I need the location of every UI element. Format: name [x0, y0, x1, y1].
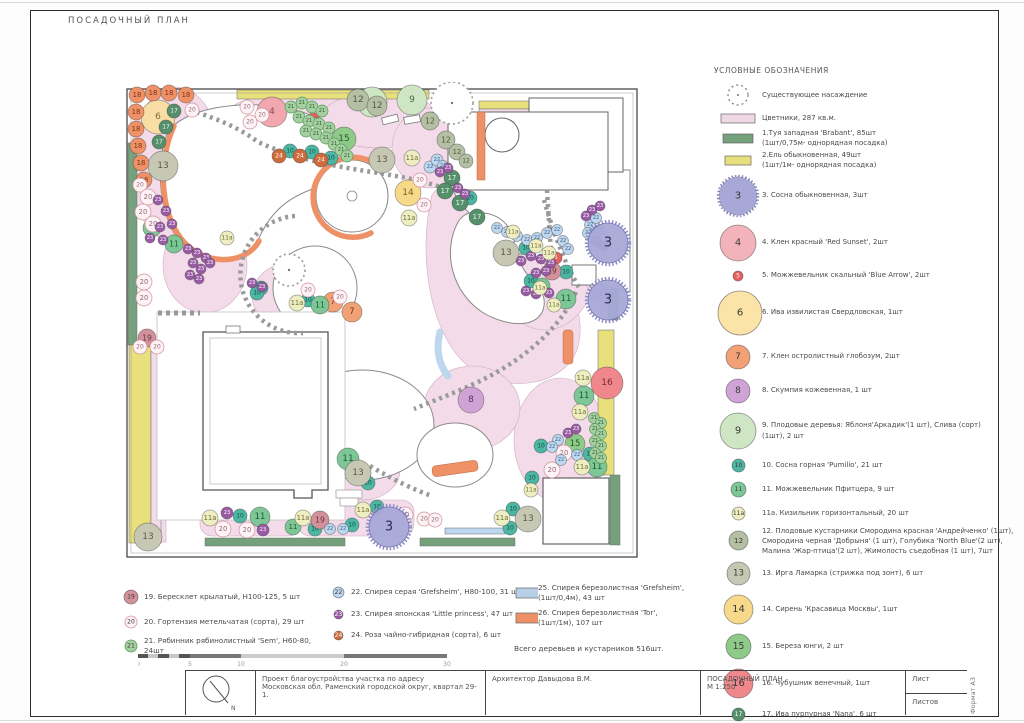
plant-marker-label: 10: [562, 269, 570, 276]
plant-marker-label: 10: [528, 475, 536, 482]
legend-item: 1313. Ирга Ламарка (стрижка под зонт), 6…: [714, 558, 1014, 589]
plant-marker-label: 11: [315, 301, 325, 310]
plant-marker-label: 23: [259, 284, 265, 290]
shed: [543, 478, 609, 544]
legend-item: 66. Ива извилистая Свердловская, 1шт: [714, 287, 1014, 339]
plant-marker-label: 23: [260, 527, 266, 533]
legend-item-icon: 22: [325, 583, 351, 602]
plant-marker-label: 13: [157, 161, 168, 171]
legend-item: 2424. Роза чайно-гибридная (сорта), 6 шт: [325, 627, 525, 644]
plant-marker-label: 22: [340, 526, 346, 532]
plant-marker-label: 20: [188, 107, 196, 114]
legend-item: 1414. Сирень 'Красавица Москвы', 1шт: [714, 591, 1014, 628]
legend-title: УСЛОВНЫЕ ОБОЗНАЧЕНИЯ: [714, 66, 1014, 75]
totals-line: Всего деревьев и кустарников 516шт.: [514, 644, 664, 653]
svg-text:5: 5: [736, 272, 740, 279]
plant-circle-icon: 23: [330, 606, 347, 623]
scalebar-label: 0: [138, 661, 140, 668]
plant-marker-label: 18: [132, 108, 141, 116]
plant-circle-icon: 11а: [728, 503, 749, 524]
plant-marker-label: 21: [323, 135, 329, 141]
legend-item-text: 20. Гортензия метельчатая (сорта), 29 шт: [144, 617, 304, 627]
titleblock-sheet-cell: Лист: [905, 670, 967, 693]
legend-item-text: 23. Спирея японская 'Little princess', 4…: [351, 609, 513, 619]
plant-marker-label: 23: [528, 253, 534, 259]
plant-circle-icon: 5: [729, 267, 747, 285]
plant-marker-label: 18: [134, 142, 143, 150]
legend-item: 26. Спирея березолистная 'Tor',(1шт/1м),…: [512, 608, 707, 629]
plant-marker-label: 23: [160, 237, 166, 243]
legend-item-text: 7. Клен остролистный глобозум, 2шт: [762, 351, 900, 361]
page-title: ПОСАДОЧНЫЙ ПЛАН: [68, 16, 190, 26]
legend-item-icon: [714, 81, 762, 109]
plant-marker-label: 23: [187, 272, 193, 278]
plant-marker-label: 12: [352, 95, 363, 105]
scalebar-label: 20: [340, 661, 348, 668]
legend-item: 25. Спирея березолистная 'Grefsheim',(1ш…: [512, 583, 707, 604]
plant-marker-label: 21: [344, 153, 350, 159]
legend-item: Существующее насаждение: [714, 81, 1014, 109]
pine-marker-label: 3: [385, 520, 393, 535]
plant-circle-icon: 3: [715, 173, 761, 219]
plant-marker-label: 23: [565, 430, 571, 436]
plant-marker-label: 11а: [530, 243, 542, 250]
plant-marker-label: 10: [509, 506, 517, 513]
plant-marker-label: 13: [500, 248, 511, 258]
plant-marker-label: 17: [162, 124, 170, 131]
plant-marker-label: 11а: [291, 299, 304, 307]
svg-text:9: 9: [735, 425, 741, 436]
plant-marker-label: 20: [243, 104, 251, 111]
plant-marker-label: 13: [142, 532, 153, 542]
legend-item-icon: 10: [714, 455, 762, 476]
strip-icon: [721, 153, 755, 168]
plant-marker-label: 11а: [357, 506, 370, 514]
plant-marker-label: 23: [548, 260, 554, 266]
plant-circle-icon: 10: [728, 455, 749, 476]
legend-item-text: 6. Ива извилистая Свердловская, 1шт: [762, 307, 903, 317]
plant-marker-label: 20: [136, 344, 144, 351]
svg-text:14: 14: [732, 604, 745, 615]
legend-item: 77. Клен остролистный глобозум, 2шт: [714, 341, 1014, 373]
strip-icon: [717, 111, 759, 126]
strip-icon: [719, 131, 757, 146]
plant-marker-label: 23: [249, 280, 255, 286]
page: { "sheet": { "title": "ПОСАДОЧНЫЙ ПЛАН" …: [0, 0, 1024, 723]
plant-marker-label: 22: [593, 215, 599, 221]
plant-marker-label: 13: [352, 468, 363, 478]
plant-marker-label: 23: [455, 185, 461, 191]
plant-marker-label: 23: [185, 246, 191, 252]
architect-name: Архитектор Давыдова В.М.: [486, 671, 700, 687]
plant-marker-label: 21: [598, 455, 604, 461]
legend-item-icon: [714, 111, 762, 126]
plant-marker-label: 22: [544, 230, 550, 236]
plant-marker-label: 4: [269, 107, 275, 117]
plant-marker-label: 12: [372, 101, 383, 111]
legend-item: 1919. Бересклет крылатый, H100-125, 5 шт: [118, 586, 330, 608]
plant-marker-label: 22: [574, 452, 580, 458]
plant-marker-label: 21: [598, 443, 604, 449]
svg-text:8: 8: [735, 386, 741, 396]
plant-marker-label: 12: [425, 117, 435, 126]
plant-marker-label: 11а: [221, 235, 233, 242]
plant-marker-label: 23: [207, 260, 213, 266]
terrace-tree: [485, 118, 519, 152]
plant-marker-label: 20: [243, 526, 252, 534]
titleblock-north-cell: N: [185, 670, 255, 715]
plant-marker-label: 23: [163, 208, 169, 214]
plant-circle-icon: 22: [329, 583, 348, 602]
plant-marker-label: 23: [583, 213, 589, 219]
plant-marker-label: 11а: [543, 250, 555, 257]
svg-text:3: 3: [735, 190, 741, 201]
scalebar-label: 5: [188, 661, 192, 668]
legend-item-text: 19. Бересклет крылатый, H100-125, 5 шт: [144, 592, 300, 602]
legend-item-icon: [714, 131, 762, 146]
plant-marker-label: 24: [296, 153, 304, 160]
legend-item-text: 11а. Кизильник горизонтальный, 20 шт: [762, 508, 909, 518]
scalebar-label: 10: [237, 661, 245, 668]
plant-marker-label: 22: [549, 444, 555, 450]
pine-marker-label: 3: [604, 236, 612, 251]
plant-marker-label: 11а: [507, 229, 519, 236]
legend-item-icon: 7: [714, 341, 762, 373]
plant-marker-label: 14: [402, 188, 414, 198]
legend-list: Существующее насаждениеЦветники, 287 кв.…: [714, 81, 1014, 723]
plant-marker-label: 20: [304, 287, 312, 294]
plant-marker-label: 17: [441, 187, 450, 195]
svg-text:21: 21: [127, 643, 135, 650]
svg-text:11а: 11а: [732, 510, 744, 517]
plant-marker-label: 23: [147, 235, 153, 241]
plant-marker-label: 10: [304, 297, 312, 304]
plant-marker-label: 22: [494, 225, 500, 231]
plant-circle-icon: 13: [723, 558, 754, 589]
plant-marker-label: 23: [589, 207, 595, 213]
svg-text:6: 6: [737, 307, 743, 318]
legend-item-icon: 8: [714, 375, 762, 407]
plant-marker-label: 22: [558, 457, 564, 463]
plant-marker-label: 23: [196, 276, 202, 282]
plant-marker-label: 15: [570, 439, 581, 449]
svg-text:12: 12: [733, 536, 742, 545]
plant-marker-label: 22: [524, 237, 530, 243]
plant-marker-label: 20: [416, 177, 424, 184]
plant-circle-icon: 19: [120, 586, 142, 608]
plant-marker-label: 11а: [297, 514, 310, 522]
svg-text:23: 23: [334, 611, 342, 618]
plant-marker-label: 21: [309, 104, 315, 110]
legend-item: 33. Сосна обыкновенная, 3шт: [714, 173, 1014, 219]
plant-marker-label: 6: [155, 112, 161, 122]
plant-marker-label: 10: [506, 525, 514, 532]
plant-circle-icon: 14: [720, 591, 757, 628]
legend-item-icon: 19: [118, 586, 144, 608]
project-address-line1: Проект благоустройства участка по адресу: [262, 675, 424, 683]
titleblock-architect-cell: Архитектор Давыдова В.М.: [485, 670, 700, 715]
plant-marker-label: 20: [420, 516, 428, 523]
legend-panel: УСЛОВНЫЕ ОБОЗНАЧЕНИЯ Существующее насажд…: [714, 66, 1014, 723]
plant-marker-label: 23: [462, 191, 468, 197]
plant-marker-label: 19: [315, 516, 325, 525]
plant-circle-icon: 8: [722, 375, 754, 407]
strip-icon: [512, 585, 538, 601]
plant-marker-label: 11а: [525, 487, 537, 494]
legend-item: 44. Клен красный 'Red Sunset', 2шт: [714, 221, 1014, 265]
plant-marker-label: 11а: [577, 374, 590, 382]
plant-marker-label: 21: [296, 114, 302, 120]
format-label: Формат А3: [969, 674, 977, 714]
plant-marker-label: 12: [453, 148, 462, 156]
legend-item: 1515. Береза юнги, 2 шт: [714, 630, 1014, 663]
plant-marker-label: 23: [597, 203, 603, 209]
plant-marker-label: 21: [326, 125, 332, 131]
plant-marker-label: 10: [308, 149, 316, 156]
legend-item-text: 8. Скумпия кожевенная, 1 шт: [762, 385, 872, 395]
legend-item-icon: 23: [325, 606, 351, 623]
legend-item-icon: 14: [714, 591, 762, 628]
plant-marker-label: 10: [527, 278, 535, 285]
plant-marker-label: 21: [316, 121, 322, 127]
plant-marker-label: 23: [543, 268, 549, 274]
legend-item-text: 24. Роза чайно-гибридная (сорта), 6 шт: [351, 630, 501, 640]
plant-marker-label: 17: [155, 139, 163, 146]
plant-marker-label: 11: [289, 523, 298, 531]
svg-text:7: 7: [735, 352, 741, 362]
plant-marker-label: 11а: [548, 302, 560, 309]
plant-marker-label: 16: [601, 378, 613, 388]
titleblock-sheets-cell: Листов: [905, 693, 967, 715]
svg-text:4: 4: [735, 237, 741, 248]
plant-marker-label: 20: [548, 466, 557, 474]
legend-item-icon: 12: [714, 527, 762, 554]
plant-marker-label: 23: [573, 426, 579, 432]
plant-circle-icon: 12: [725, 527, 752, 554]
plant-marker-label: 22: [554, 227, 560, 233]
plant-marker-label: 22: [427, 164, 433, 170]
plant-marker-label: 22: [555, 437, 561, 443]
plant-marker-label: 22: [565, 246, 571, 252]
legend-item-icon: 11а: [714, 503, 762, 524]
plant-marker-label: 10: [348, 522, 356, 529]
legend-item: 1010. Сосна горная 'Pumilio', 21 шт: [714, 455, 1014, 476]
plant-marker-label: 20: [153, 344, 161, 351]
svg-text:22: 22: [334, 589, 342, 596]
legend-item: 11а11а. Кизильник горизонтальный, 20 шт: [714, 503, 1014, 524]
legend-item-text: 5. Можжевельник скальный 'Blue Arrow', 2…: [762, 270, 930, 280]
plant-marker-label: 11а: [574, 408, 587, 416]
plant-marker-label: 11а: [406, 154, 419, 162]
plant-marker-label: 11: [579, 391, 590, 401]
plant-marker-label: 23: [523, 288, 529, 294]
legend-item-text: 10. Сосна горная 'Pumilio', 21 шт: [762, 460, 883, 470]
plant-marker-label: 21: [319, 108, 325, 114]
legend-item: Цветники, 287 кв.м.: [714, 111, 1014, 126]
legend-item-text: 9. Плодовые деревья: Яблоня'Аркадик'(1 ш…: [762, 420, 981, 440]
plant-marker-label: 17: [170, 108, 178, 115]
legend-item-icon: 13: [714, 558, 762, 589]
existing-tree-icon: [724, 81, 752, 109]
plant-marker-label: 22: [327, 526, 333, 532]
plant-marker-label: 17: [473, 213, 482, 221]
legend-item-icon: 5: [714, 267, 762, 285]
plant-marker-label: 23: [518, 258, 524, 264]
plant-circle-icon: 15: [722, 630, 755, 663]
plant-marker-label: 20: [246, 119, 254, 126]
legend-item-text: 25. Спирея березолистная 'Grefsheim',(1ш…: [538, 583, 684, 604]
plant-marker-label: 23: [533, 270, 539, 276]
plant-marker-label: 8: [468, 395, 474, 405]
plan-drawing: 4556778991010101010101010101010101010101…: [120, 82, 644, 564]
plant-marker-label: 13: [522, 514, 533, 524]
titleblock-drawing-cell: ПОСАДОЧНЫЙ ПЛАН М 1:250: [700, 670, 905, 715]
plant-marker-label: 23: [445, 165, 451, 171]
plant-marker-label: 13: [376, 155, 387, 165]
plant-circle-icon: 6: [714, 287, 762, 339]
plant-marker-label: 12: [441, 136, 451, 145]
legend-item-text: 22. Спирея серая 'Grefsheim', H80-100, 3…: [351, 587, 522, 597]
plant-marker-label: 10: [236, 513, 244, 520]
plant-marker-label: 20: [140, 294, 149, 302]
plant-marker-label: 21: [313, 131, 319, 137]
plant-marker-label: 11: [169, 240, 179, 249]
legend-item-text: 14. Сирень 'Красавица Москвы', 1шт: [762, 604, 898, 614]
plant-marker-label: 23: [437, 169, 443, 175]
plant-marker-label: 10: [286, 148, 294, 155]
plant-marker-label: 9: [409, 95, 415, 105]
legend-item-icon: 6: [714, 287, 762, 339]
plant-marker-label: 18: [149, 89, 158, 97]
plant-circle-icon: 4: [716, 221, 760, 265]
plant-marker-label: 21: [598, 431, 604, 437]
plant-circle-icon: 11: [727, 478, 750, 501]
legend-item-icon: 15: [714, 630, 762, 663]
plant-marker-label: 11: [255, 512, 266, 522]
svg-text:N: N: [231, 705, 236, 712]
legend-item: 55. Можжевельник скальный 'Blue Arrow', …: [714, 267, 1014, 285]
plant-marker-label: 18: [137, 159, 146, 167]
svg-text:24: 24: [334, 632, 342, 639]
plant-marker-label: 20: [140, 278, 149, 286]
legend-item-text: 2.Ель обыкновенная, 49шт(1шт/1м- одноряд…: [762, 150, 876, 170]
legend-item-icon: 24: [325, 627, 351, 644]
plant-marker-label: 17: [448, 174, 457, 182]
plant-circle-icon: 9: [716, 409, 760, 453]
plant-marker-label: 11а: [204, 514, 217, 522]
sheets-label: Листов: [906, 694, 967, 710]
plant-marker-label: 20: [336, 294, 344, 301]
plant-marker-label: 23: [155, 197, 161, 203]
legend-item-text: 26. Спирея березолистная 'Tor',(1шт/1м),…: [538, 608, 658, 629]
svg-text:20: 20: [127, 619, 135, 626]
legend-item-text: 12. Плодовые кустарники Смородина красна…: [762, 526, 1013, 556]
plant-marker-label: 10: [537, 443, 545, 450]
plant-marker-label: 17: [456, 199, 465, 207]
svg-text:11: 11: [734, 486, 742, 493]
plant-marker-label: 11: [561, 294, 572, 304]
drawing-scale: М 1:250: [707, 683, 735, 691]
plant-marker-label: 10: [327, 155, 335, 162]
plant-marker-label: 21: [303, 128, 309, 134]
plant-marker-label: 20: [420, 202, 428, 209]
plant-marker-label: 20: [144, 193, 153, 201]
plant-marker-label: 23: [190, 260, 196, 266]
legend-item-icon: [714, 153, 762, 168]
legend-item-icon: 3: [714, 173, 762, 219]
plant-marker-label: 11а: [576, 463, 589, 471]
plant-marker-label: 23: [546, 290, 552, 296]
legend-item: 88. Скумпия кожевенная, 1 шт: [714, 375, 1014, 407]
plant-circle-icon: 20: [121, 612, 141, 632]
legend-item-icon: [512, 585, 538, 601]
plant-marker-label: 20: [431, 517, 439, 524]
plant-marker-label: 23: [194, 250, 200, 256]
legend-item-icon: 11: [714, 478, 762, 501]
plant-marker-label: 7: [349, 307, 354, 317]
legend-item-text: 11. Можжевельник Пфитцера, 9 шт: [762, 484, 895, 494]
legend-item-icon: 4: [714, 221, 762, 265]
plant-marker-label: 23: [157, 224, 163, 230]
plant-marker-label: 22: [587, 222, 593, 228]
legend-item: 1.Туя западная 'Brabant', 85шт(1шт/0,75м…: [714, 128, 1014, 148]
legend-item-text: 13. Ирга Ламарка (стрижка под зонт), 6 ш…: [762, 568, 923, 578]
plant-marker-label: 18: [133, 91, 142, 99]
legend-item-text: Цветники, 287 кв.м.: [762, 113, 836, 123]
legend-item: 1111. Можжевельник Пфитцера, 9 шт: [714, 478, 1014, 501]
legend-item: 2323. Спирея японская 'Little princess',…: [325, 606, 525, 623]
scale-bar: 05102030: [138, 648, 458, 672]
plant-marker-label: 18: [165, 89, 174, 97]
north-arrow-icon: N: [186, 671, 252, 713]
titleblock-project-cell: Проект благоустройства участка по адресу…: [255, 670, 485, 715]
plant-marker-label: 18: [182, 91, 191, 99]
sheet-label: Лист: [906, 671, 967, 687]
legend-item: 2222. Спирея серая 'Grefsheim', H80-100,…: [325, 583, 525, 602]
legend-item-icon: [512, 610, 538, 626]
plant-marker-label: 22: [560, 238, 566, 244]
plant-marker-label: 18: [132, 125, 141, 133]
svg-text:19: 19: [127, 594, 135, 601]
legend-item-text: 3. Сосна обыкновенная, 3шт: [762, 190, 868, 200]
terrace-inner: [448, 112, 608, 190]
legend-item-text: Существующее насаждение: [762, 90, 867, 100]
legend-item-text: 4. Клен красный 'Red Sunset', 2шт: [762, 237, 888, 247]
plant-marker-label: 11а: [403, 214, 416, 222]
scalebar-label: 30: [443, 661, 451, 668]
plant-marker-label: 21: [306, 118, 312, 124]
plant-marker-label: 21: [299, 100, 305, 106]
drawing-name: ПОСАДОЧНЫЙ ПЛАН: [707, 675, 783, 683]
legend-item-icon: 9: [714, 409, 762, 453]
svg-text:10: 10: [734, 462, 742, 469]
svg-text:13: 13: [733, 568, 744, 578]
legend-item: 99. Плодовые деревья: Яблоня'Аркадик'(1 …: [714, 409, 1014, 453]
plant-circle-icon: 7: [722, 341, 754, 373]
page-edge-top: [0, 2, 1024, 3]
legend-item: 1212. Плодовые кустарники Смородина крас…: [714, 526, 1014, 556]
plant-circle-icon: 24: [330, 627, 347, 644]
pine-marker-label: 3: [604, 293, 612, 308]
legend-bottom-col3: 25. Спирея березолистная 'Grefsheim',(1ш…: [512, 583, 707, 633]
plant-marker-label: 20: [219, 525, 228, 533]
house-footprint: [203, 332, 328, 498]
plant-marker-label: 23: [169, 221, 175, 227]
plant-marker-label: 23: [198, 266, 204, 272]
project-address-line2: Московская обл. Раменский городской окру…: [262, 683, 477, 699]
legend-bottom-col2: 2222. Спирея серая 'Grefsheim', H80-100,…: [325, 583, 525, 648]
legend-item-text: 15. Береза юнги, 2 шт: [762, 641, 844, 651]
